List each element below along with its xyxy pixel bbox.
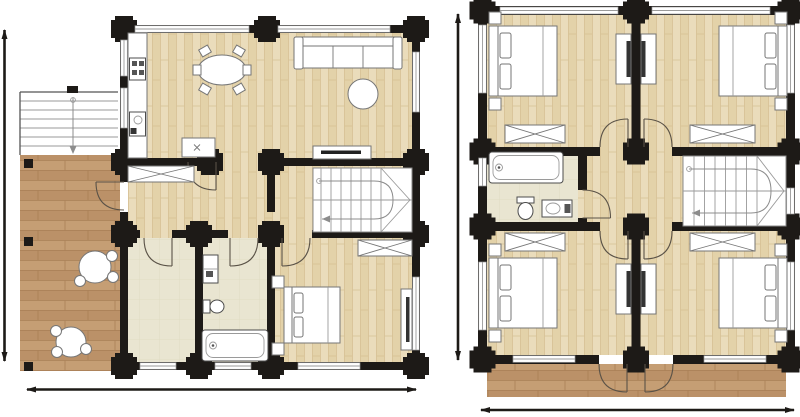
double-bed	[284, 287, 340, 343]
window	[500, 7, 618, 14]
window	[135, 26, 249, 33]
window	[413, 277, 420, 350]
bedroom-wardrobe	[358, 240, 412, 256]
wardrobe	[690, 125, 755, 143]
dresser-tv	[401, 289, 412, 350]
desk	[616, 264, 631, 314]
kitchen-island	[182, 138, 215, 157]
window	[121, 88, 128, 128]
wardrobe	[690, 233, 755, 251]
terrace-chair	[75, 276, 86, 287]
bed-top-left	[489, 12, 557, 110]
staircase-ground	[313, 168, 412, 232]
window	[298, 363, 360, 370]
window	[479, 25, 487, 93]
desk	[641, 264, 656, 314]
window	[652, 7, 770, 14]
kitchen-sink-icon	[130, 112, 146, 136]
terrace-chair	[81, 344, 92, 355]
upper-floor-plan	[458, 0, 800, 410]
terrace-chair	[52, 347, 63, 358]
dining-table	[198, 55, 246, 85]
tv-sideboard	[313, 146, 371, 159]
bed-top-right	[719, 12, 787, 110]
sofa	[294, 37, 402, 69]
bath-sink-icon	[542, 200, 572, 217]
toilet-icon	[517, 197, 534, 220]
coffee-table	[348, 79, 378, 109]
window	[704, 356, 766, 363]
window	[140, 363, 176, 370]
window	[513, 356, 575, 363]
window	[787, 262, 795, 330]
kitchen-counter	[128, 33, 147, 158]
bath-sink-icon	[203, 255, 218, 283]
stove-icon	[130, 58, 146, 80]
utility-room-floor	[128, 238, 195, 362]
desk	[641, 34, 656, 84]
floor-plan-canvas	[0, 0, 800, 417]
window	[787, 25, 795, 93]
bed-bottom-left	[489, 244, 557, 342]
window	[413, 52, 420, 112]
window	[787, 188, 795, 214]
bathtub-icon	[489, 152, 563, 183]
nightstand	[272, 276, 284, 288]
floor-plan-drawing	[0, 0, 800, 417]
exterior-steps	[20, 86, 120, 155]
window	[215, 363, 251, 370]
desk	[616, 34, 631, 84]
terrace-chair	[108, 272, 119, 283]
window	[479, 262, 487, 330]
window	[121, 40, 128, 76]
window	[278, 26, 390, 33]
nightstand	[272, 343, 284, 355]
toilet-icon	[203, 300, 224, 313]
wardrobe	[505, 233, 565, 251]
terrace-chair	[51, 326, 62, 337]
bathtub-icon	[202, 330, 268, 361]
staircase-upper	[683, 156, 786, 226]
bed-bottom-right	[719, 244, 787, 342]
wardrobe	[505, 125, 565, 143]
terrace-chair	[107, 251, 118, 262]
hall-wardrobe	[128, 166, 194, 182]
window	[479, 158, 487, 186]
